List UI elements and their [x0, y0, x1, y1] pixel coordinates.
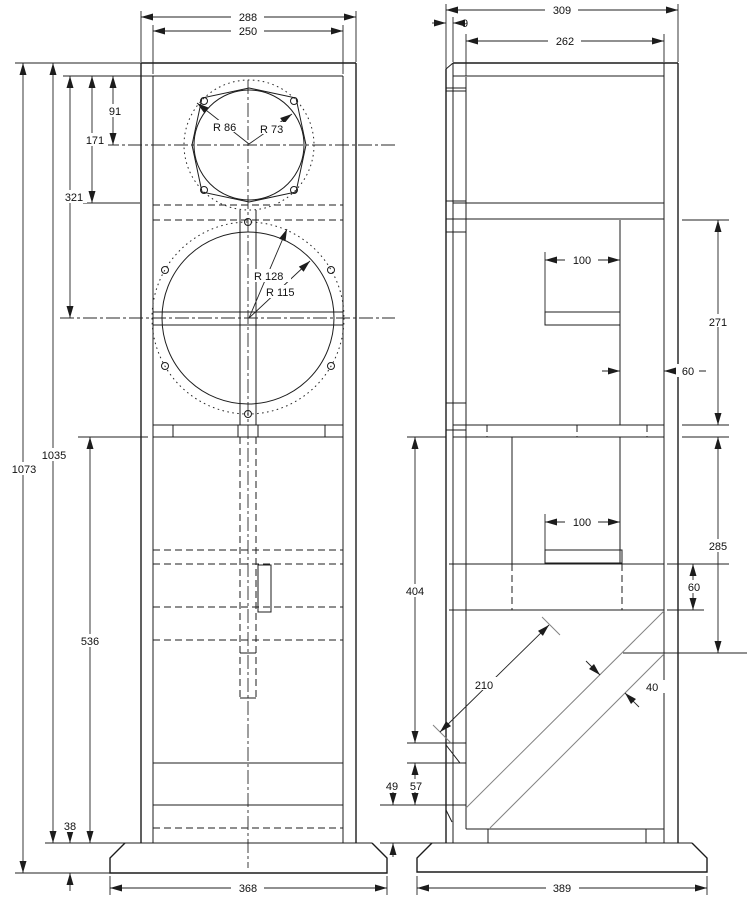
- radius-label-tweeter-flange: R 86: [213, 122, 236, 134]
- dim-lower-chamber-height-side: 285: [709, 541, 727, 553]
- lower-bracket: [545, 550, 622, 563]
- dim-tweeter-shelf-offset: 171: [86, 135, 104, 147]
- side-dimensions: 309 9 262 100 271 60 404 100 285 60 210 …: [380, 3, 747, 895]
- dim-front-cabinet-height: 1035: [42, 450, 66, 462]
- side-plinth: [417, 843, 707, 872]
- dim-side-overall-depth: 309: [553, 5, 571, 17]
- dim-plinth-height: 38: [64, 821, 76, 833]
- dim-rear-gap: 60: [682, 366, 694, 378]
- dim-brace-width: 40: [646, 682, 658, 694]
- dim-woofer-center-offset: 321: [65, 192, 83, 204]
- upper-bracket: [545, 312, 620, 325]
- dim-plinth-width: 368: [239, 883, 257, 895]
- radius-label-woofer-cutout: R 115: [266, 287, 295, 299]
- front-dimensions: 288 250 1073 1035 321 171 91 536 38 368 …: [8, 10, 387, 895]
- radius-label-tweeter-cutout: R 73: [260, 124, 283, 136]
- dim-side-plinth-depth: 389: [553, 883, 571, 895]
- dim-brace-length: 210: [475, 680, 493, 692]
- diagonal-brace: [466, 611, 664, 829]
- front-view: [60, 63, 395, 873]
- dim-foot-gap: 49: [386, 781, 398, 793]
- radius-label-woofer-flange: R 128: [254, 271, 283, 283]
- dim-front-overall-height: 1073: [12, 464, 36, 476]
- dim-upper-bracket-depth: 100: [573, 255, 591, 267]
- technical-drawing-page: 288 250 1073 1035 321 171 91 536 38 368 …: [0, 0, 749, 902]
- dim-upper-chamber-height: 271: [709, 317, 727, 329]
- speaker-cabinet-drawing: 288 250 1073 1035 321 171 91 536 38 368 …: [0, 0, 749, 902]
- dim-lower-bracket-depth: 100: [573, 517, 591, 529]
- dim-lower-section-height: 404: [406, 586, 424, 598]
- dim-lower-chamber-height: 536: [81, 636, 99, 648]
- side-view: [417, 63, 707, 872]
- front-plinth: [110, 843, 387, 873]
- dim-front-panel-thickness: 9: [462, 18, 468, 30]
- dim-shelf-band-height: 60: [688, 582, 700, 594]
- dim-bottom-panel-height: 57: [410, 781, 422, 793]
- dim-front-baffle-width: 250: [239, 26, 257, 38]
- dim-side-inner-depth: 262: [556, 36, 574, 48]
- dim-front-overall-width: 288: [239, 12, 257, 24]
- terminal-recess: [258, 565, 271, 612]
- dim-tweeter-center-offset: 91: [109, 106, 121, 118]
